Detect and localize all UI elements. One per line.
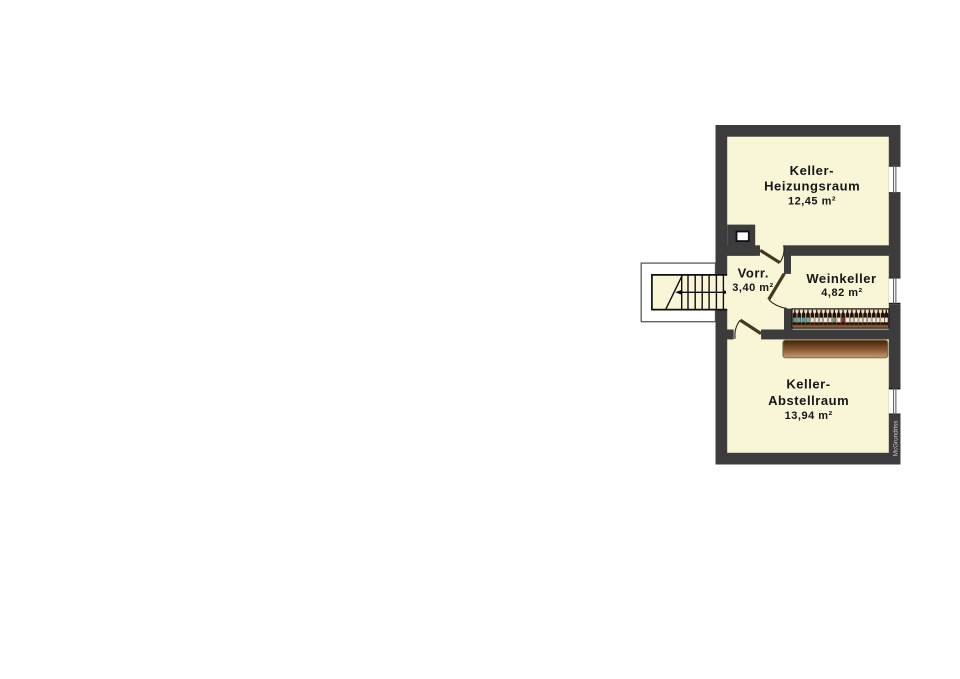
svg-text:3,40 m²: 3,40 m²: [732, 282, 773, 294]
svg-text:12,45 m²: 12,45 m²: [788, 196, 836, 208]
svg-text:Abstellraum: Abstellraum: [768, 393, 849, 408]
svg-text:Keller-: Keller-: [790, 163, 834, 178]
svg-text:13,94 m²: 13,94 m²: [785, 410, 833, 422]
svg-text:Heizungsraum: Heizungsraum: [764, 178, 860, 193]
svg-text:Weinkeller: Weinkeller: [806, 271, 876, 286]
svg-text:Keller-: Keller-: [786, 377, 830, 392]
svg-text:Vorr.: Vorr.: [738, 265, 769, 280]
svg-text:McGrundriss: McGrundriss: [892, 421, 899, 457]
svg-text:4,82 m²: 4,82 m²: [821, 287, 862, 299]
